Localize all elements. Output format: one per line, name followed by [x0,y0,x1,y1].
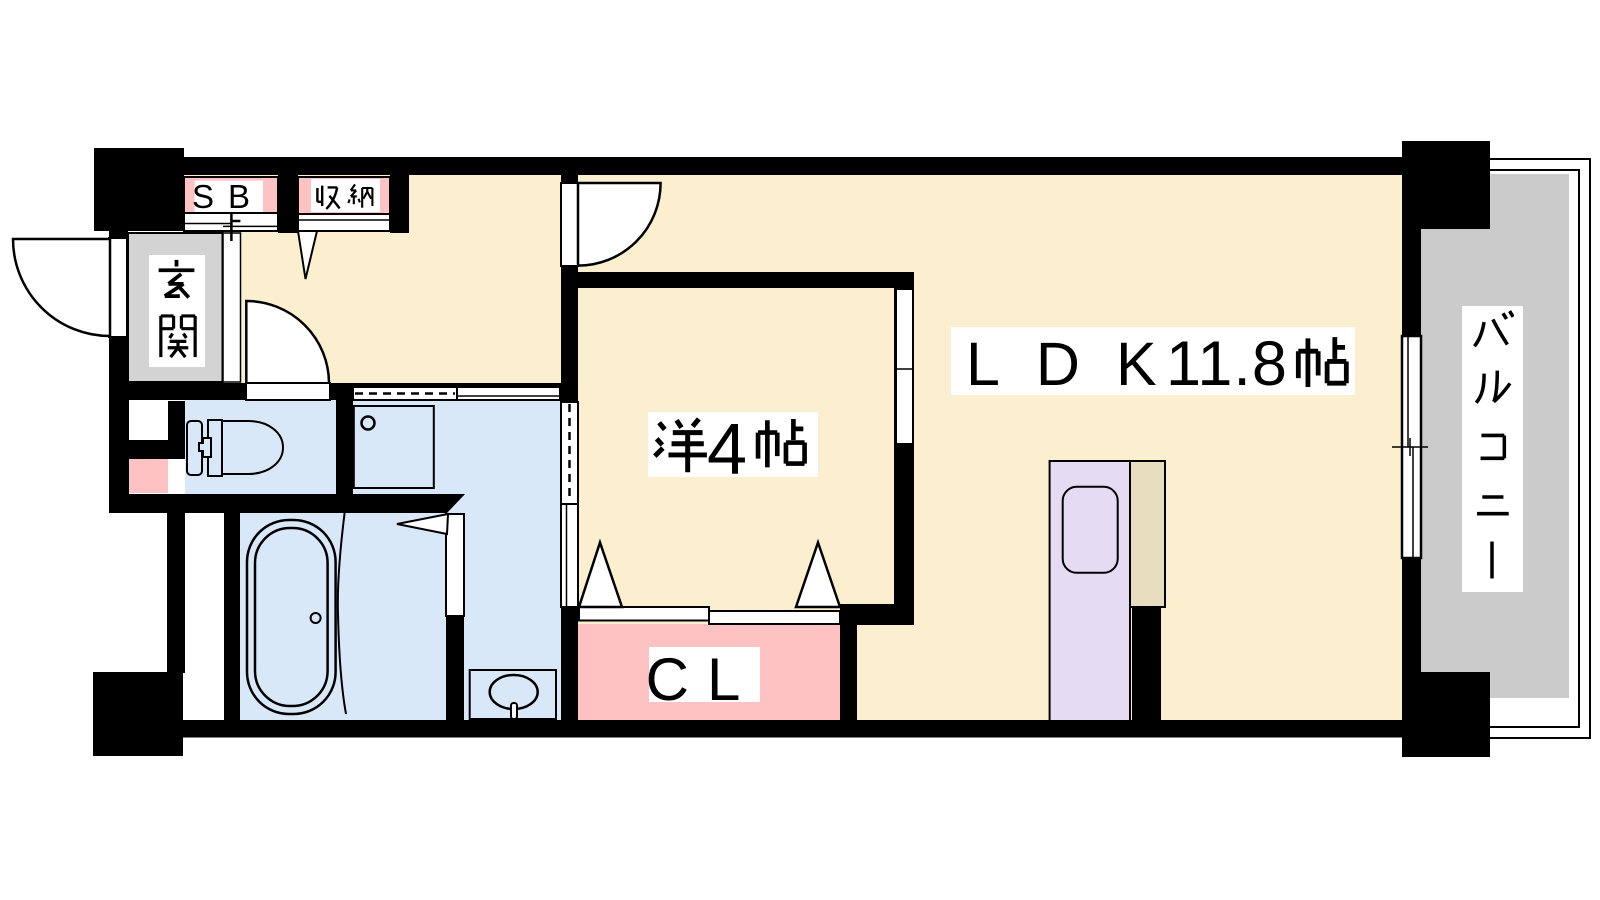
svg-text:CL: CL [646,646,759,713]
svg-text:4: 4 [707,410,747,490]
svg-text:11.8: 11.8 [1166,329,1288,399]
svg-text:LDK: LDK [966,330,1193,398]
svg-text:SB: SB [192,178,264,215]
